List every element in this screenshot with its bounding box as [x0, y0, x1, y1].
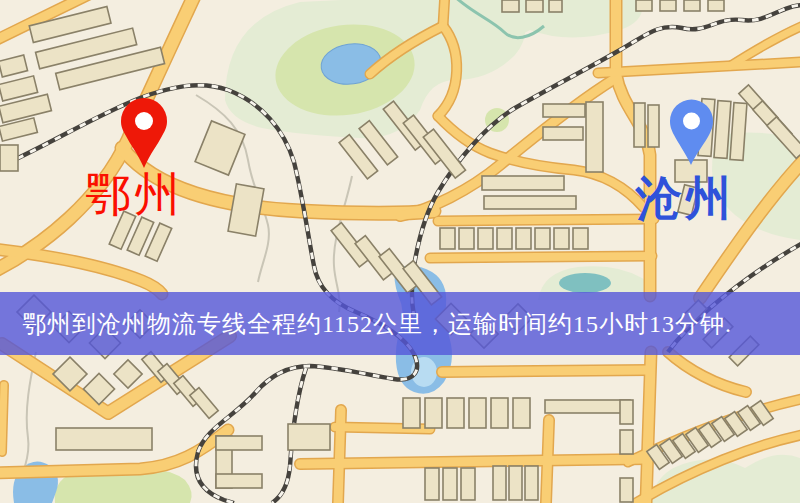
route-info-banner: 鄂州到沧州物流专线全程约1152公里，运输时间约15小时13分钟. [0, 292, 800, 355]
destination-city-label: 沧州 [636, 176, 734, 222]
map-canvas [0, 0, 800, 503]
origin-city-label: 鄂州 [85, 172, 183, 218]
map-screenshot: 鄂州 沧州 鄂州到沧州物流专线全程约1152公里，运输时间约15小时13分钟. [0, 0, 800, 503]
route-info-text: 鄂州到沧州物流专线全程约1152公里，运输时间约15小时13分钟. [22, 308, 732, 340]
